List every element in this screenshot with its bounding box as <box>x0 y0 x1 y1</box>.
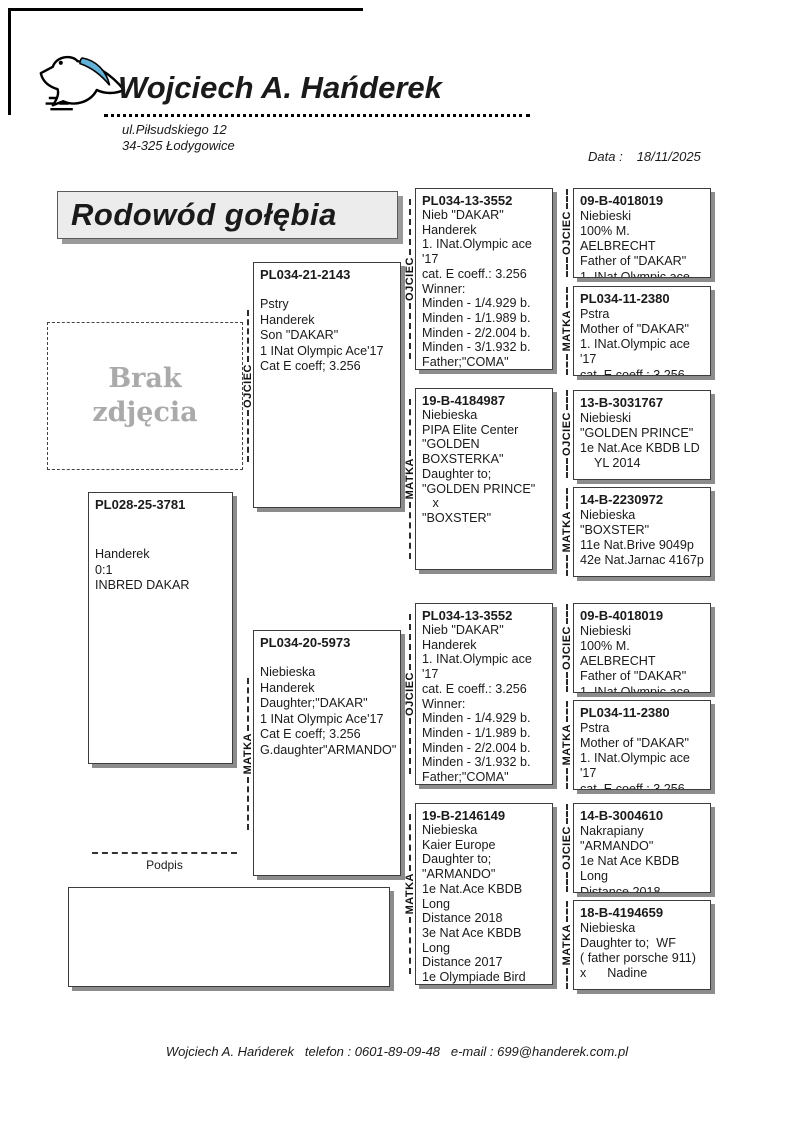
photo-placeholder-text: Brak zdjęcia <box>92 362 197 430</box>
ring-number: 18-B-4194659 <box>580 905 704 921</box>
pedigree-details: Niebieska Handerek Daughter;"DAKAR" 1 IN… <box>260 665 394 759</box>
pedigree-box-ggp-6: PL034-11-2380 Pstra Mother of "DAKAR" 1.… <box>573 700 711 790</box>
relation-label-father: OJCIEC <box>560 390 574 478</box>
ring-number: PL034-13-3552 <box>422 193 546 208</box>
notes-box <box>68 887 390 987</box>
dashed-connector <box>409 199 411 255</box>
date-row: Data :18/11/2025 <box>588 149 701 164</box>
pedigree-details: Niebieski "GOLDEN PRINCE" 1e Nat.Ace KBD… <box>580 411 704 472</box>
ring-number: PL034-11-2380 <box>580 705 704 721</box>
pedigree-details: Nieb "DAKAR" Handerek 1. INat.Olympic ac… <box>422 208 546 370</box>
relation-label-father: OJCIEC <box>560 189 574 277</box>
dashed-connector <box>409 814 411 871</box>
date-value: 18/11/2025 <box>637 149 701 164</box>
dashed-connector <box>566 672 568 692</box>
pedigree-details: Nieb "DAKAR" Handerek 1. INat.Olympic ac… <box>422 623 546 785</box>
pedigree-box-ggp-3: 13-B-3031767 Niebieski "GOLDEN PRINCE" 1… <box>573 390 711 480</box>
dashed-connector <box>409 718 411 774</box>
dashed-connector <box>409 917 411 974</box>
dashed-connector <box>566 287 568 308</box>
address-city: 34-325 Łodygowice <box>122 138 235 153</box>
ring-number: PL034-21-2143 <box>260 267 394 283</box>
dashed-connector <box>566 604 568 624</box>
dashed-connector <box>566 701 568 722</box>
pedigree-box-mother-father: PL034-13-3552 Nieb "DAKAR" Handerek 1. I… <box>415 603 553 785</box>
dashed-connector <box>566 872 568 892</box>
dashed-connector <box>566 458 568 478</box>
dashed-connector <box>409 303 411 359</box>
ring-number: 09-B-4018019 <box>580 608 704 624</box>
photo-placeholder-box: Brak zdjęcia <box>47 322 243 470</box>
pedigree-box-ggp-7: 14-B-3004610 Nakrapiany "ARMANDO" 1e Nat… <box>573 803 711 893</box>
pedigree-box-ggp-5: 09-B-4018019 Niebieski 100% M. AELBRECHT… <box>573 603 711 693</box>
dashed-connector <box>566 189 568 209</box>
pedigree-box-father: PL034-21-2143 Pstry Handerek Son "DAKAR"… <box>253 262 401 508</box>
dashed-connector <box>247 410 249 462</box>
dotted-underline <box>104 114 530 117</box>
pedigree-details: Handerek 0:1 INBRED DAKAR <box>95 547 226 594</box>
pedigree-details: Pstry Handerek Son "DAKAR" 1 INat Olympi… <box>260 297 394 375</box>
relation-label-father: OJCIEC <box>560 804 574 892</box>
dashed-connector <box>566 390 568 410</box>
relation-label-mother: MATKA <box>241 678 255 830</box>
pedigree-box-father-mother: 19-B-4184987 Niebieska PIPA Elite Center… <box>415 388 553 570</box>
pedigree-details: Nakrapiany "ARMANDO" 1e Nat Ace KBDB Lon… <box>580 824 704 894</box>
dashed-connector <box>566 257 568 277</box>
signature-line <box>92 852 237 854</box>
relation-label-mother: MATKA <box>560 701 574 789</box>
dashed-connector <box>247 310 249 362</box>
relation-label-father: OJCIEC <box>403 199 417 359</box>
dashed-connector <box>566 488 568 509</box>
dashed-connector <box>247 777 249 830</box>
breeder-name: Wojciech A. Hańderek <box>118 70 442 106</box>
ring-number: 09-B-4018019 <box>580 193 704 209</box>
ring-number: PL034-11-2380 <box>580 291 704 307</box>
dashed-connector <box>247 678 249 731</box>
ring-number: 19-B-2146149 <box>422 808 546 823</box>
pedigree-details: Niebieska Daughter to; WF ( father porsc… <box>580 921 704 982</box>
pedigree-document-page: Wojciech A. Hańderek ul.Piłsudskiego 12 … <box>0 0 794 1123</box>
dashed-connector <box>566 804 568 824</box>
footer-contact: Wojciech A. Hańderek telefon : 0601-89-0… <box>0 1044 794 1059</box>
relation-label-father: OJCIEC <box>560 604 574 692</box>
address-street: ul.Piłsudskiego 12 <box>122 122 227 137</box>
relation-label-mother: MATKA <box>560 488 574 576</box>
ring-number: 14-B-3004610 <box>580 808 704 824</box>
relation-label-mother: MATKA <box>403 399 417 559</box>
pedigree-details: Niebieska "BOXSTER" 11e Nat.Brive 9049p … <box>580 508 704 569</box>
document-title-box: Rodowód gołębia <box>57 191 398 239</box>
ring-number: 14-B-2230972 <box>580 492 704 508</box>
pedigree-details: Pstra Mother of "DAKAR" 1. INat.Olympic … <box>580 307 704 377</box>
pedigree-box-father-father: PL034-13-3552 Nieb "DAKAR" Handerek 1. I… <box>415 188 553 370</box>
ring-number: PL034-20-5973 <box>260 635 394 651</box>
date-label: Data : <box>588 149 623 164</box>
pedigree-box-subject: PL028-25-3781 Handerek 0:1 INBRED DAKAR <box>88 492 233 764</box>
dashed-connector <box>409 399 411 456</box>
relation-label-father: OJCIEC <box>403 614 417 774</box>
dashed-connector <box>566 354 568 375</box>
relation-label-mother: MATKA <box>560 901 574 989</box>
dashed-connector <box>566 768 568 789</box>
pedigree-box-mother: PL034-20-5973 Niebieska Handerek Daughte… <box>253 630 401 876</box>
dashed-connector <box>409 502 411 559</box>
dashed-connector <box>566 968 568 989</box>
ring-number: 13-B-3031767 <box>580 395 704 411</box>
pedigree-details: Pstra Mother of "DAKAR" 1. INat.Olympic … <box>580 721 704 791</box>
relation-label-father: OJCIEC <box>241 310 255 462</box>
pedigree-details: Niebieski 100% M. AELBRECHT Father of "D… <box>580 624 704 694</box>
pedigree-box-ggp-8: 18-B-4194659 Niebieska Daughter to; WF (… <box>573 900 711 990</box>
dashed-connector <box>409 614 411 670</box>
ring-number: PL028-25-3781 <box>95 497 226 513</box>
dashed-connector <box>566 555 568 576</box>
relation-label-mother: MATKA <box>403 814 417 974</box>
pedigree-details: Niebieska PIPA Elite Center "GOLDEN BOXS… <box>422 408 546 526</box>
pedigree-box-ggp-1: 09-B-4018019 Niebieski 100% M. AELBRECHT… <box>573 188 711 278</box>
pedigree-box-ggp-4: 14-B-2230972 Niebieska "BOXSTER" 11e Nat… <box>573 487 711 577</box>
ring-number: PL034-13-3552 <box>422 608 546 623</box>
pedigree-details: Niebieska Kaier Europe Daughter to; "ARM… <box>422 823 546 985</box>
signature-label: Podpis <box>92 858 237 872</box>
page-title: Rodowód gołębia <box>71 197 337 233</box>
pedigree-box-mother-mother: 19-B-2146149 Niebieska Kaier Europe Daug… <box>415 803 553 985</box>
ring-number: 19-B-4184987 <box>422 393 546 408</box>
relation-label-mother: MATKA <box>560 287 574 375</box>
pedigree-details: Niebieski 100% M. AELBRECHT Father of "D… <box>580 209 704 279</box>
pedigree-box-ggp-2: PL034-11-2380 Pstra Mother of "DAKAR" 1.… <box>573 286 711 376</box>
dashed-connector <box>566 901 568 922</box>
